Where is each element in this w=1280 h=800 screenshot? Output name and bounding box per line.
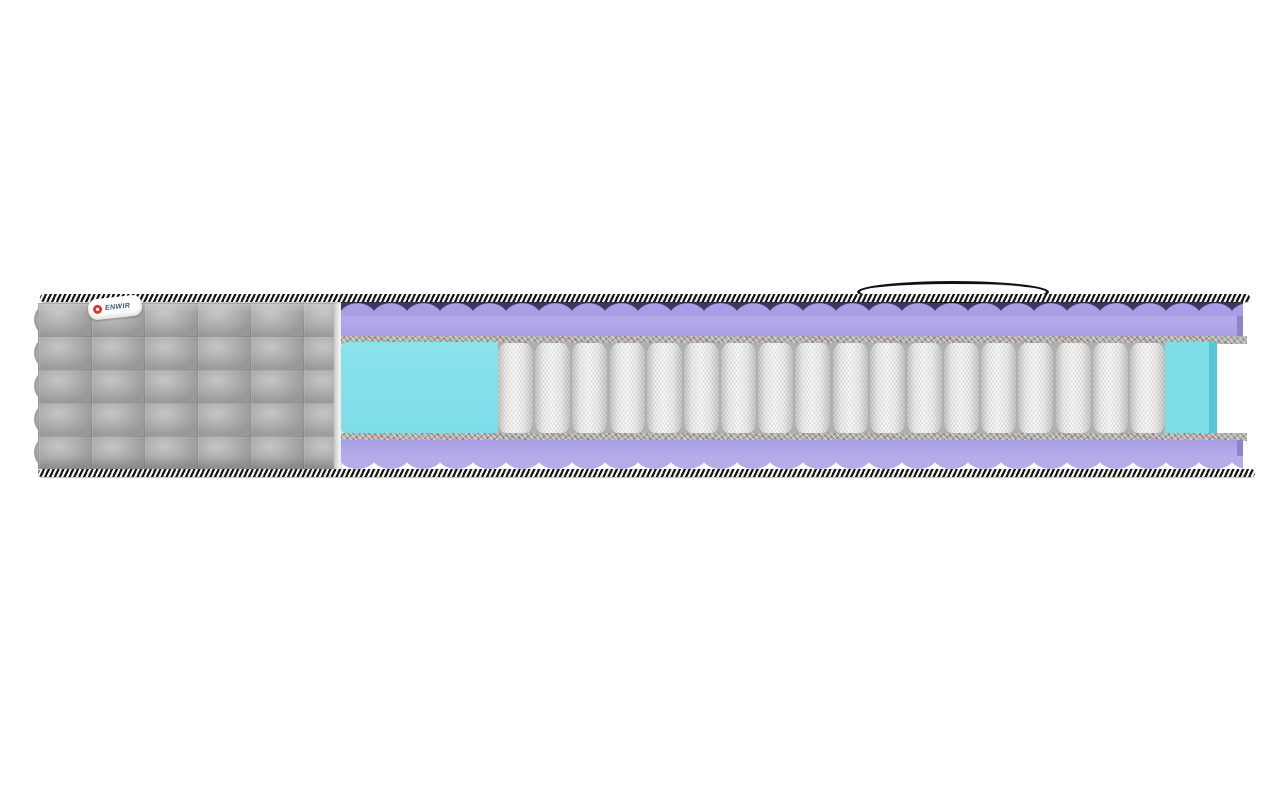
- piping-tape-top: [40, 294, 1250, 302]
- piping-tape-bottom: [38, 469, 1255, 477]
- mattress-cross-section: ENWIR: [33, 283, 1255, 479]
- comfort-foam-layer-bottom: [341, 440, 1243, 457]
- spring-coil: [907, 343, 942, 433]
- quilted-cover: [38, 303, 335, 469]
- spring-coil: [572, 343, 607, 433]
- spring-coil: [610, 343, 645, 433]
- spring-coil: [870, 343, 905, 433]
- spring-coil: [981, 343, 1016, 433]
- brand-label-text: ENWIR: [105, 302, 131, 312]
- spring-coil: [758, 343, 793, 433]
- spring-coil: [1056, 343, 1091, 433]
- spring-coil: [1093, 343, 1128, 433]
- spring-coil: [944, 343, 979, 433]
- perimeter-foam-block-right: [1165, 342, 1217, 434]
- comfort-foam-layer-top: [341, 316, 1243, 337]
- spring-coil: [1018, 343, 1053, 433]
- mattress-interior-layers: [341, 302, 1243, 469]
- product-image-canvas: ENWIR: [0, 0, 1280, 800]
- spring-coil: [684, 343, 719, 433]
- egg-crate-foam-bottom: [341, 456, 1243, 470]
- perimeter-foam-block-left: [341, 342, 498, 434]
- spring-coil: [647, 343, 682, 433]
- pocket-springs: [498, 343, 1165, 433]
- spring-coil: [795, 343, 830, 433]
- brand-logo-icon: [93, 304, 103, 314]
- spring-coil: [1130, 343, 1165, 433]
- spring-coil: [498, 343, 533, 433]
- spring-coil: [721, 343, 756, 433]
- spring-coil: [833, 343, 868, 433]
- spring-coil: [535, 343, 570, 433]
